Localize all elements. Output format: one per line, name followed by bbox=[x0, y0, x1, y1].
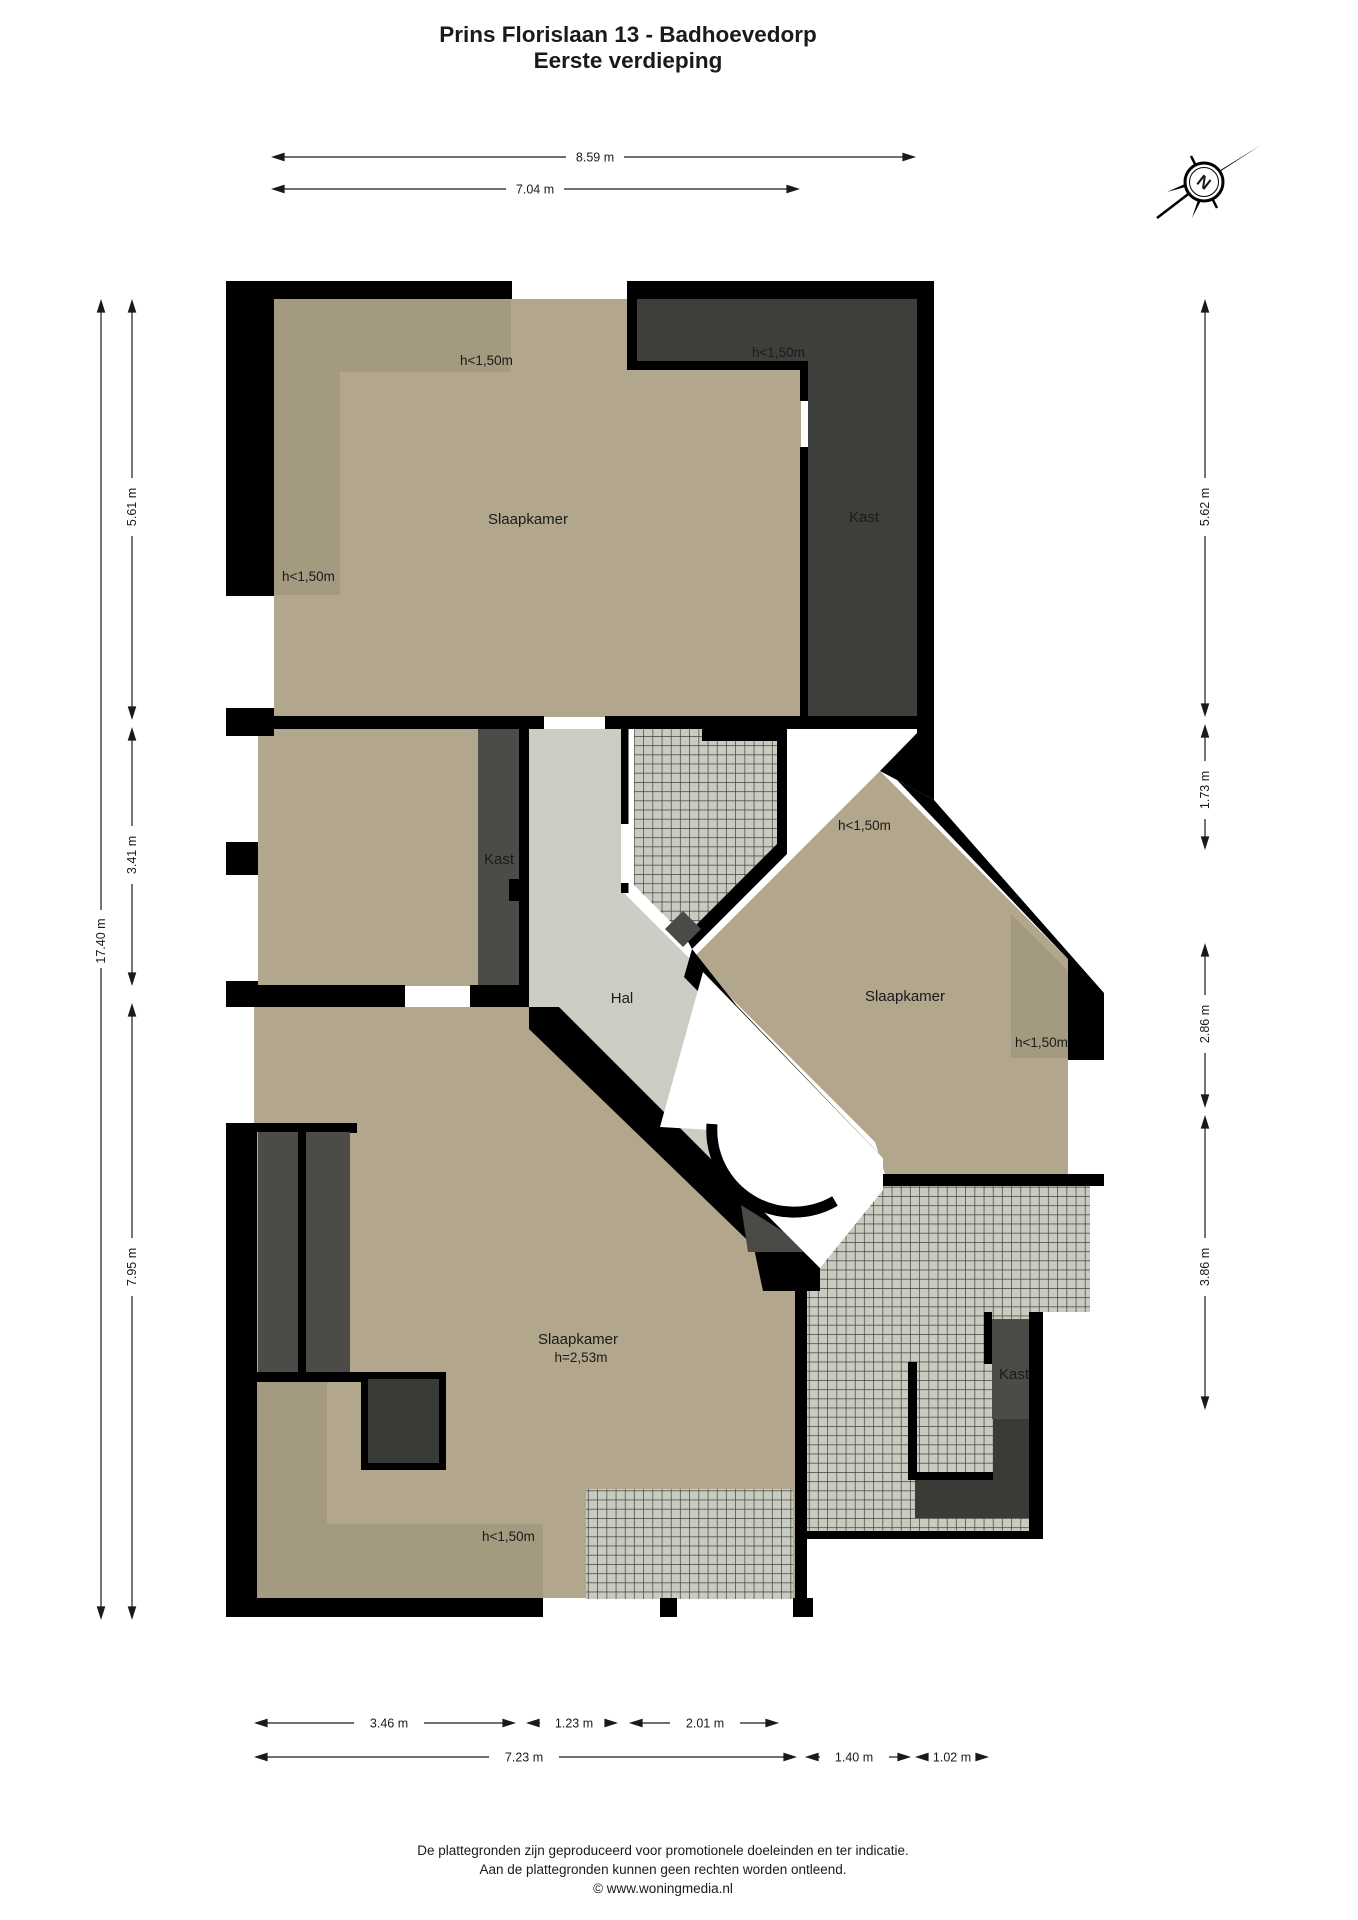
svg-text:1.40 m: 1.40 m bbox=[835, 1751, 873, 1765]
svg-text:5.61 m: 5.61 m bbox=[125, 488, 139, 526]
svg-text:Hal: Hal bbox=[611, 990, 634, 1007]
svg-text:Slaapkamer: Slaapkamer bbox=[488, 511, 568, 528]
svg-text:17.40 m: 17.40 m bbox=[94, 918, 108, 963]
svg-text:h<1,50m: h<1,50m bbox=[838, 818, 891, 833]
svg-text:h<1,50m: h<1,50m bbox=[1015, 1035, 1068, 1050]
svg-text:3.86 m: 3.86 m bbox=[1198, 1248, 1212, 1286]
svg-text:1.23 m: 1.23 m bbox=[555, 1717, 593, 1731]
svg-text:7.95 m: 7.95 m bbox=[125, 1248, 139, 1286]
svg-text:h<1,50m: h<1,50m bbox=[482, 1529, 535, 1544]
svg-text:Kast: Kast bbox=[849, 509, 880, 526]
svg-text:Slaapkamer: Slaapkamer bbox=[865, 988, 945, 1005]
svg-text:h<1,50m: h<1,50m bbox=[282, 569, 335, 584]
svg-text:Prins Florislaan 13 - Badhoeve: Prins Florislaan 13 - Badhoevedorp bbox=[439, 22, 817, 47]
svg-text:Kast: Kast bbox=[484, 851, 515, 868]
svg-text:Kast: Kast bbox=[999, 1366, 1030, 1383]
svg-text:h=2,53m: h=2,53m bbox=[555, 1350, 608, 1365]
svg-text:2.86 m: 2.86 m bbox=[1198, 1005, 1212, 1043]
svg-text:1.02 m: 1.02 m bbox=[933, 1751, 971, 1765]
svg-text:8.59 m: 8.59 m bbox=[576, 151, 614, 165]
svg-text:3.41 m: 3.41 m bbox=[125, 836, 139, 874]
svg-text:Aan de plattegronden kunnen ge: Aan de plattegronden kunnen geen rechten… bbox=[479, 1862, 846, 1877]
svg-text:De plattegronden zijn geproduc: De plattegronden zijn geproduceerd voor … bbox=[417, 1843, 909, 1858]
svg-text:5.62 m: 5.62 m bbox=[1198, 488, 1212, 526]
svg-text:Slaapkamer: Slaapkamer bbox=[538, 1331, 618, 1348]
svg-text:2.01 m: 2.01 m bbox=[686, 1717, 724, 1731]
svg-text:7.23 m: 7.23 m bbox=[505, 1751, 543, 1765]
svg-text:3.46 m: 3.46 m bbox=[370, 1717, 408, 1731]
svg-text:1.73 m: 1.73 m bbox=[1198, 771, 1212, 809]
svg-text:h<1,50m: h<1,50m bbox=[460, 353, 513, 368]
svg-text:© www.woningmedia.nl: © www.woningmedia.nl bbox=[593, 1881, 733, 1896]
svg-text:Eerste verdieping: Eerste verdieping bbox=[534, 48, 723, 73]
svg-text:h<1,50m: h<1,50m bbox=[752, 345, 805, 360]
svg-text:7.04 m: 7.04 m bbox=[516, 183, 554, 197]
